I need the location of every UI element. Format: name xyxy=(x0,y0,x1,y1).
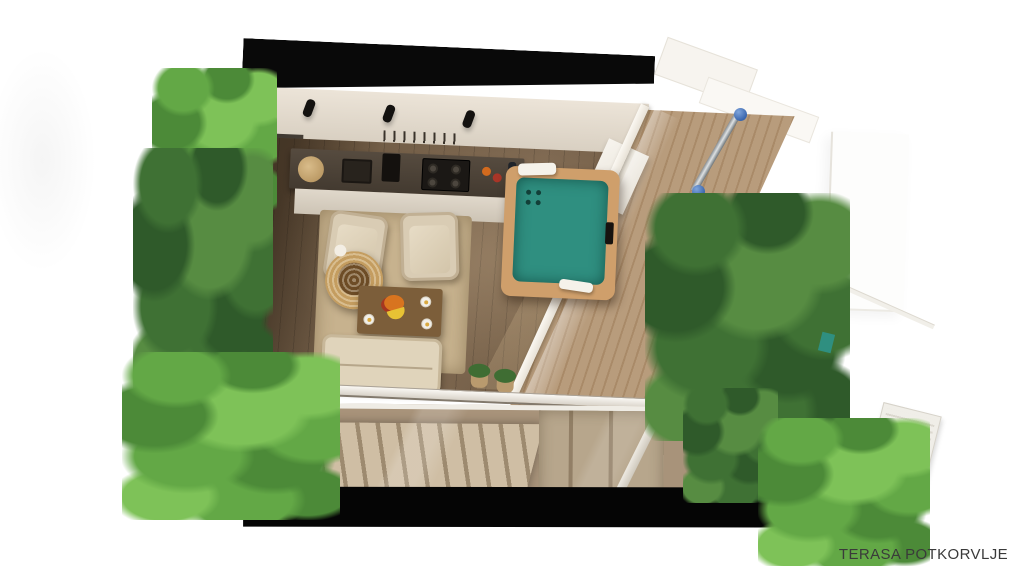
ceiling-spotlight-icon xyxy=(382,104,397,124)
burner-icon xyxy=(451,164,461,174)
gas-hob xyxy=(421,158,470,192)
hot-tub xyxy=(501,166,621,301)
jet-icon xyxy=(536,190,541,195)
fruit-item xyxy=(493,173,502,182)
burner-icon xyxy=(450,178,460,188)
armchair-right xyxy=(400,212,460,281)
burner-icon xyxy=(427,177,437,187)
render-canvas: TERASA POTKORVLJE xyxy=(0,0,1024,576)
plant-leaves xyxy=(468,363,491,378)
fruit-item xyxy=(482,167,491,176)
jet-icon xyxy=(536,200,541,205)
knife-block xyxy=(381,153,400,182)
potted-plant xyxy=(471,372,489,388)
hot-tub-water xyxy=(512,177,608,285)
hot-tub-control-panel xyxy=(605,222,614,244)
cutting-board xyxy=(297,156,324,183)
caption: TERASA POTKORVLJE xyxy=(839,546,1008,563)
kitchen-sink xyxy=(341,159,372,184)
ceiling-spotlight-icon xyxy=(302,98,317,118)
rattan-chair-pillow xyxy=(334,244,347,257)
ceiling-spotlight-icon xyxy=(461,109,476,129)
plant-leaves xyxy=(494,368,517,383)
coffee-table xyxy=(357,285,443,337)
towel xyxy=(518,163,556,176)
plate xyxy=(420,296,431,307)
background-shadow xyxy=(0,40,120,340)
jet-icon xyxy=(526,190,531,195)
plate xyxy=(421,318,432,329)
jet-icon xyxy=(526,200,531,205)
armchair-cushion xyxy=(409,225,450,274)
bamboo-foliage-left-bottom xyxy=(122,352,340,520)
plate xyxy=(363,314,374,325)
burner-icon xyxy=(428,163,438,173)
bamboo-foliage-bottom-right xyxy=(758,418,930,566)
railing-cap-icon xyxy=(734,108,747,121)
sofa-seam xyxy=(332,363,432,369)
